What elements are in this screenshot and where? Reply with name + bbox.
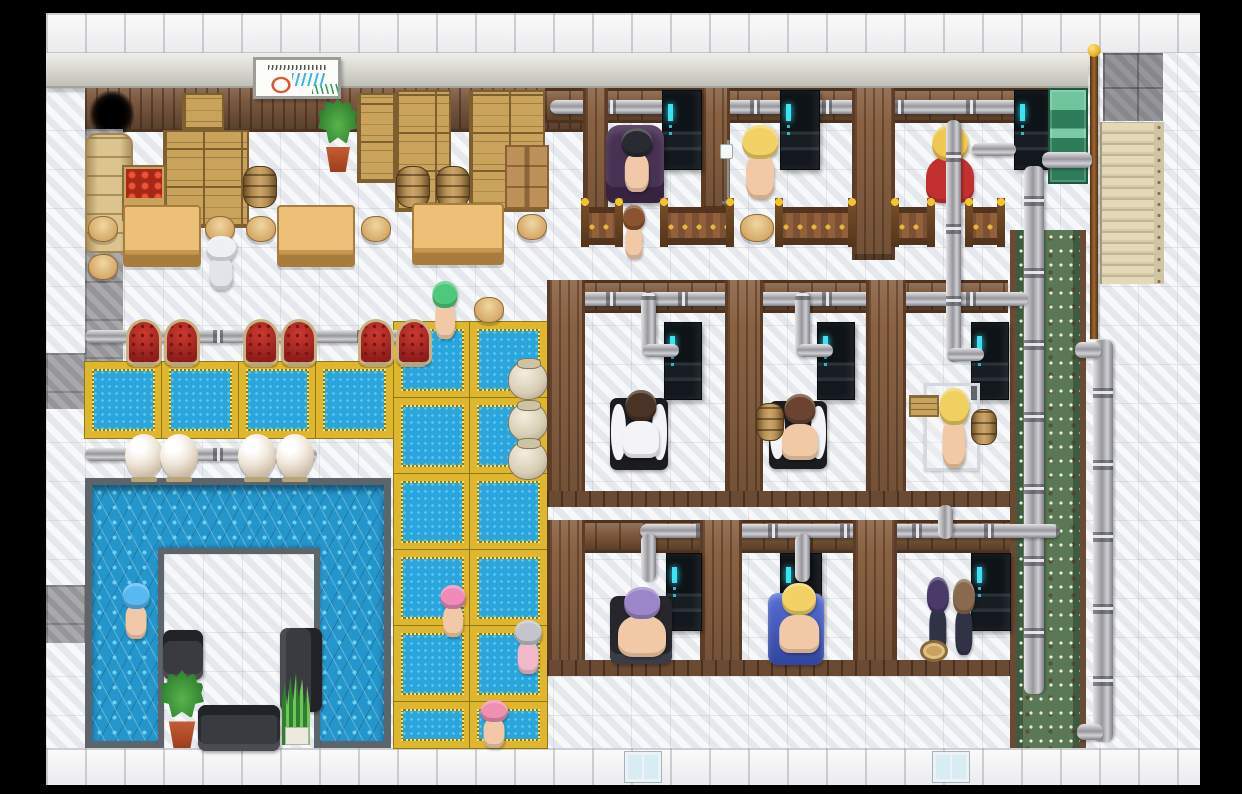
gold-post-railing bbox=[895, 207, 931, 245]
bath-mat bbox=[85, 362, 162, 438]
cardboard-boxes bbox=[505, 145, 549, 209]
npc-brown-hair-girl[interactable] bbox=[949, 579, 979, 655]
stairs-down[interactable] bbox=[1100, 122, 1164, 284]
dining-table[interactable] bbox=[412, 203, 504, 265]
pipe-drop bbox=[795, 534, 810, 582]
iv-stand[interactable] bbox=[720, 140, 736, 204]
npc-restrained-girl[interactable] bbox=[616, 128, 658, 192]
milking-machine[interactable] bbox=[817, 322, 855, 400]
wood-pillar bbox=[866, 280, 906, 506]
ledge-strip bbox=[46, 53, 1088, 88]
potted-plant bbox=[318, 98, 358, 172]
milk-jar bbox=[508, 440, 548, 480]
gold-post-railing bbox=[779, 207, 852, 245]
wood-pillar bbox=[547, 520, 585, 676]
gold-post-railing bbox=[664, 207, 730, 245]
pipe-elbow bbox=[948, 348, 984, 361]
dining-table[interactable] bbox=[123, 205, 201, 267]
wall-top-band bbox=[46, 13, 1200, 53]
gold-post-railing bbox=[969, 207, 1001, 245]
wood-pillar bbox=[700, 520, 742, 676]
npc-green-hair-girl[interactable] bbox=[428, 281, 462, 339]
bath-mat bbox=[316, 362, 393, 438]
pipe-elbow bbox=[643, 344, 679, 357]
milk-jar bbox=[508, 360, 548, 400]
barrel bbox=[436, 166, 470, 208]
npc-cow-girl-blonde[interactable] bbox=[736, 125, 784, 199]
npc-blue-hair-girl[interactable] bbox=[118, 583, 154, 639]
npc-milked-girl-kneeling[interactable] bbox=[779, 394, 821, 460]
green-conveyor bbox=[1010, 230, 1086, 748]
barrel bbox=[971, 409, 997, 445]
riser-pipe bbox=[946, 120, 961, 362]
npc-purple-hair-spread[interactable] bbox=[618, 587, 666, 657]
bottom-wall-band bbox=[46, 748, 1200, 785]
milking-machine[interactable] bbox=[780, 90, 820, 170]
npc-blonde-on-frame[interactable] bbox=[934, 388, 974, 468]
bath-mat bbox=[239, 362, 316, 438]
milking-machine[interactable] bbox=[662, 90, 702, 170]
wall-hole[interactable] bbox=[90, 91, 134, 133]
red-pod-chair[interactable] bbox=[164, 319, 200, 365]
stool[interactable] bbox=[361, 216, 391, 242]
green-cabinet[interactable] bbox=[1048, 88, 1088, 184]
wood-pillar bbox=[725, 280, 763, 506]
window-right bbox=[933, 752, 969, 782]
milking-machine[interactable] bbox=[664, 322, 702, 400]
stool[interactable] bbox=[474, 297, 504, 323]
npc-grey-hair-girl[interactable] bbox=[510, 620, 546, 674]
flagpole bbox=[1090, 55, 1098, 339]
stool[interactable] bbox=[88, 216, 118, 242]
pipe-elbow bbox=[797, 344, 833, 357]
npc-white-fluffy[interactable] bbox=[201, 236, 241, 290]
crate-column bbox=[357, 93, 395, 183]
red-pod-chair[interactable] bbox=[396, 319, 432, 365]
pipe-elbow bbox=[1075, 342, 1101, 358]
wood-trim bbox=[547, 491, 1010, 507]
wooden-sign[interactable] bbox=[909, 395, 939, 417]
pipe-stub bbox=[938, 505, 953, 539]
npc-pink-hair-girl[interactable] bbox=[436, 585, 470, 637]
bath-mat bbox=[394, 474, 471, 550]
npc-pink-bun-girl[interactable] bbox=[476, 700, 512, 748]
gray-strip-left-1 bbox=[46, 353, 85, 409]
red-pod-chair[interactable] bbox=[243, 319, 279, 365]
sphere-pod[interactable] bbox=[276, 434, 314, 478]
bath-mat bbox=[162, 362, 239, 438]
stool[interactable] bbox=[88, 254, 118, 280]
bath-mat bbox=[394, 398, 471, 474]
wood-pillar bbox=[852, 88, 895, 260]
gold-post-railing bbox=[585, 207, 619, 245]
npc-blonde-squat-device[interactable] bbox=[776, 583, 822, 653]
wood-pillar bbox=[853, 520, 897, 676]
black-sofa[interactable] bbox=[198, 705, 280, 751]
bath-mat bbox=[470, 474, 547, 550]
game-stage[interactable] bbox=[46, 13, 1200, 785]
pipe-drop bbox=[641, 534, 656, 582]
barrel bbox=[396, 166, 430, 208]
stool[interactable] bbox=[246, 216, 276, 242]
red-pod-chair[interactable] bbox=[358, 319, 394, 365]
bath-mat bbox=[394, 626, 471, 702]
milk-jar bbox=[508, 402, 548, 442]
game-window bbox=[0, 0, 1242, 794]
stool[interactable] bbox=[740, 214, 774, 242]
floor-basket bbox=[920, 640, 948, 662]
npc-boy[interactable] bbox=[619, 205, 649, 259]
pipe-elbow bbox=[1077, 724, 1103, 740]
dining-table[interactable] bbox=[277, 205, 355, 267]
crate-single bbox=[182, 93, 224, 131]
window-left bbox=[625, 752, 661, 782]
pipe-elbow bbox=[1042, 152, 1092, 168]
barrel bbox=[243, 166, 277, 208]
stool[interactable] bbox=[517, 214, 547, 240]
main-down-pipe bbox=[1024, 166, 1044, 694]
bath-mat bbox=[394, 702, 471, 748]
sphere-pod[interactable] bbox=[238, 434, 276, 478]
sphere-pod[interactable] bbox=[125, 434, 163, 478]
whiteboard-sign[interactable] bbox=[253, 57, 341, 99]
right-down-pipe bbox=[1093, 340, 1113, 742]
milker-pipe-link bbox=[972, 143, 1016, 156]
bath-mat bbox=[470, 550, 547, 626]
barrel bbox=[756, 403, 784, 441]
npc-milked-girl-stockings[interactable] bbox=[620, 390, 662, 458]
red-pod-chair[interactable] bbox=[126, 319, 162, 365]
red-pod-chair[interactable] bbox=[281, 319, 317, 365]
wood-pillar bbox=[547, 280, 585, 506]
sphere-pod[interactable] bbox=[160, 434, 198, 478]
gray-tiles-top-right bbox=[1103, 53, 1163, 121]
gray-strip-left-2 bbox=[46, 585, 85, 643]
